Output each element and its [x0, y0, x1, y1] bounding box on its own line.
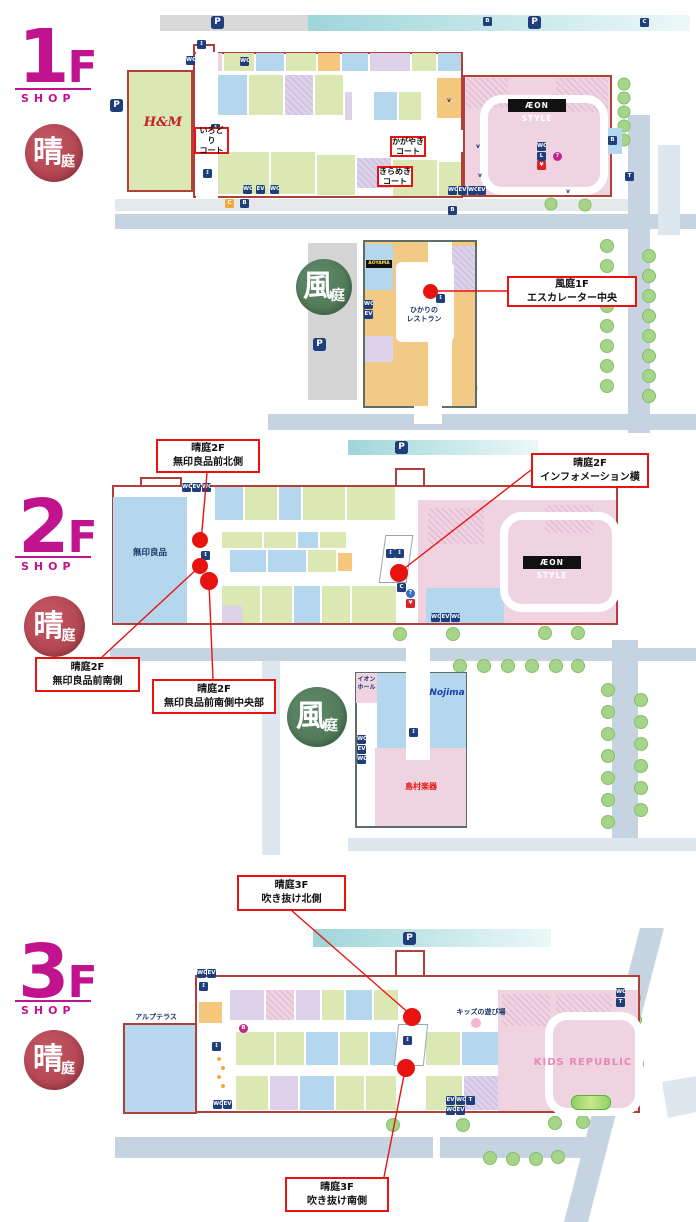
parking-icon: P [403, 932, 416, 945]
shop-cell [451, 246, 475, 290]
footprint-mark [221, 1066, 225, 1070]
callout-2f-muji-north: 晴庭2F 無印良品前北側 [156, 439, 260, 473]
location-pin-information-side [390, 564, 408, 582]
shop-cell [318, 53, 340, 71]
escalator-icon: ↕ [212, 1042, 221, 1051]
toilet-icon: WC [270, 185, 279, 194]
shop-cell [308, 550, 336, 572]
escalator-icon: ↕ [199, 982, 208, 991]
shop-cell [298, 530, 318, 548]
callout-text: 晴庭2F [71, 661, 105, 675]
elevator-icon: EV [192, 483, 201, 492]
shop-cell [215, 487, 243, 520]
phone-icon: T [625, 172, 634, 181]
shop-cell [245, 487, 277, 520]
elevator-icon: EV [256, 185, 265, 194]
parking-icon: P [395, 441, 408, 454]
shop-cell [294, 586, 320, 623]
footprint-mark [221, 1084, 225, 1088]
parking-icon: P [528, 16, 541, 29]
callout-text: 晴庭2F [191, 442, 225, 456]
kaze-niwa-badge-2f: 風庭 [287, 687, 347, 747]
location-pin-atrium-south [397, 1059, 415, 1077]
callout-text: インフォメーション横 [540, 471, 640, 485]
callout-kaze-1f-escalator: 風庭1F エスカレーター中央 [507, 276, 637, 307]
atm-icon: ¥ [537, 161, 546, 170]
shop-cell [322, 990, 344, 1020]
callout-irodori-court: いろどり コート [194, 127, 229, 154]
muji-block [113, 497, 187, 623]
kids-play-area-label: キッズの遊び場 [450, 1008, 512, 1017]
shop-cell [222, 530, 262, 548]
shop-cell [322, 586, 350, 623]
badge-main-char: 晴 [34, 612, 64, 642]
kiosk-icon: C [225, 199, 234, 208]
elevator-icon: EV [477, 186, 486, 195]
skids-garden-logo [571, 1095, 611, 1110]
escalator-icon: ↕ [409, 728, 418, 737]
kids-republic-label: KIDS REPUBLIC [528, 1057, 638, 1070]
toilet-icon: WC [364, 300, 373, 309]
callout-text: 風庭1F [555, 278, 589, 292]
toilet-icon: WC [202, 483, 211, 492]
badge-main-char: 風 [296, 702, 326, 732]
callout-2f-information-side: 晴庭2F インフォメーション横 [531, 453, 649, 488]
corridor [406, 673, 430, 760]
parking-bridge-3f [395, 950, 425, 978]
shop-cell [370, 1032, 396, 1065]
floor1-rule [15, 88, 91, 90]
car-icon: C [640, 18, 649, 27]
callout-text: 晴庭3F [320, 1181, 354, 1195]
badge-sub-char: 庭 [331, 285, 345, 305]
shop-cell [249, 75, 283, 115]
toilet-icon: WC [537, 142, 546, 151]
cart-mark: v [447, 97, 451, 104]
shop-cell [374, 990, 398, 1020]
floor3-rule [15, 1000, 91, 1002]
callout-3f-atrium-south: 晴庭3F 吹き抜け南側 [285, 1177, 389, 1212]
toilet-icon: WC [448, 186, 457, 195]
shop-cell [320, 530, 346, 548]
location-pin-kaze-escalator [423, 284, 438, 299]
footprint-mark [217, 1057, 221, 1061]
nojima-store-label: Nojima [428, 688, 466, 699]
shop-cell [315, 75, 343, 115]
floor3-sublabel: SHOP [21, 1004, 76, 1017]
information-icon: ? [553, 152, 562, 161]
callout-text: 吹き抜け北側 [262, 893, 322, 907]
shop-cell [300, 1076, 334, 1110]
shop-cell [230, 550, 266, 572]
muji-store-label: 無印良品 [124, 548, 176, 559]
badge-sub-char: 庭 [61, 151, 75, 171]
toilet-icon: WC [240, 57, 249, 66]
shop-cell [264, 530, 296, 548]
shimamura-store-label: 島村楽器 [396, 782, 446, 792]
mall-floor-guide: 1F SHOP 晴庭 ÆON STYLE H&M v v v v P B P C [0, 0, 696, 1222]
badge-main-char: 風 [303, 272, 333, 302]
callout-2f-muji-south: 晴庭2F 無印良品前南側 [35, 657, 140, 692]
shop-cell [346, 990, 372, 1020]
escalator-icon: ↕ [436, 294, 445, 303]
toilet-icon: WC [182, 483, 191, 492]
toilet-icon: WC [213, 1100, 222, 1109]
aeon-hall-label: イオン ホール [355, 676, 378, 691]
toilet-icon: WC [468, 186, 477, 195]
shop-cell [262, 586, 292, 623]
kiosk-icon: C [397, 583, 406, 592]
label-line: レストラン [396, 315, 452, 324]
callout-3f-atrium-north: 晴庭3F 吹き抜け北側 [237, 875, 346, 911]
footprint-mark [217, 1075, 221, 1079]
callout-text: いろどり [196, 126, 227, 146]
toilet-icon: WC [357, 735, 366, 744]
location-pin-muji-south-center [200, 572, 218, 590]
shop-cell [268, 550, 306, 572]
aeon-style-label-2f: ÆON STYLE [523, 556, 581, 569]
shop-cell [303, 487, 345, 520]
floor2-sublabel: SHOP [21, 560, 76, 573]
shop-cell [336, 1076, 364, 1110]
callout-text: 吹き抜け南側 [307, 1195, 367, 1209]
shop-cell [340, 1032, 368, 1065]
callout-text: 無印良品前南側 [53, 675, 123, 689]
callout-kirameki-court: きらめき コート [377, 166, 413, 187]
toilet-icon: WC [431, 613, 440, 622]
shop-cell [366, 1076, 396, 1110]
callout-text: 晴庭2F [573, 457, 607, 471]
hikari-restaurant-label: ひかりの レストラン [396, 306, 452, 324]
escalator-icon: ↕ [386, 549, 395, 558]
shop-cell [279, 487, 301, 520]
toilet-icon: WC [197, 969, 206, 978]
shop-cell [317, 155, 355, 195]
callout-text: きらめき [379, 167, 411, 177]
alp-terrace-block [123, 1023, 197, 1114]
parking-icon: P [313, 338, 326, 351]
callout-text: コート [396, 147, 420, 157]
corridor [352, 72, 374, 132]
shop-cell [236, 1076, 268, 1110]
cart-mark: v [478, 172, 482, 179]
hare-niwa-badge-2f: 晴庭 [24, 596, 85, 657]
phone-icon: T [616, 998, 625, 1007]
shop-cell [217, 75, 247, 115]
callout-text: 無印良品前南側中央部 [164, 697, 264, 711]
callout-text: 無印良品前北側 [173, 456, 243, 470]
shop-cell [338, 553, 352, 571]
shop-cell [224, 53, 254, 71]
shop-cell [399, 92, 421, 120]
bus-icon: B [483, 17, 492, 26]
callout-text: かがやき [392, 137, 424, 147]
locker-icon: L [537, 152, 546, 161]
callout-text: コート [200, 146, 224, 156]
corridor [406, 645, 430, 675]
bus-icon: B [240, 199, 249, 208]
elevator-icon: EV [207, 969, 216, 978]
escalator-icon: ↕ [395, 549, 404, 558]
toilet-icon: WC [446, 1106, 455, 1115]
elevator-icon: EV [357, 745, 366, 754]
elevator-icon: EV [446, 1096, 455, 1105]
hare-niwa-badge-1f: 晴庭 [25, 124, 83, 182]
parking-icon: P [211, 16, 224, 29]
callout-text: エスカレーター中央 [527, 292, 617, 306]
information-icon: ? [406, 589, 415, 598]
shop-cell [438, 53, 461, 71]
cart-mark: v [476, 143, 480, 150]
badge-main-char: 晴 [33, 1045, 63, 1075]
label-line: イオン [355, 676, 378, 684]
shop-cell [306, 1032, 338, 1065]
location-pin-atrium-north [403, 1008, 421, 1026]
callout-text: 晴庭3F [275, 879, 309, 893]
baby-room-icon: B [239, 1024, 248, 1033]
bicycle-icon: B [608, 136, 617, 145]
corridor [233, 1065, 398, 1076]
shop-cell [342, 53, 368, 71]
phone-icon: T [466, 1096, 475, 1105]
toilet-icon: WC [186, 56, 195, 65]
kids-play-spot [471, 1018, 481, 1028]
badge-sub-char: 庭 [61, 1058, 75, 1078]
atm-icon: ¥ [406, 599, 415, 608]
badge-sub-char: 庭 [62, 625, 76, 645]
aeon-style-label-1f: ÆON STYLE [508, 99, 566, 112]
corridor [215, 520, 398, 532]
floor1-sublabel: SHOP [21, 92, 76, 105]
entrance-stub-kaze [414, 406, 442, 424]
elevator-icon: EV [456, 1106, 465, 1115]
shop-cell [426, 1032, 460, 1065]
floor2-rule [15, 556, 91, 558]
shop-cell [370, 53, 410, 71]
location-pin-muji-north [192, 532, 208, 548]
shop-cell [222, 606, 242, 623]
callout-text: コート [383, 177, 407, 187]
callout-text: 晴庭2F [197, 683, 231, 697]
hare-niwa-badge-3f: 晴庭 [24, 1030, 84, 1090]
corridor [215, 572, 398, 586]
toilet-icon: WC [357, 755, 366, 764]
floor3-label: 3F [18, 935, 96, 1009]
badge-sub-char: 庭 [324, 715, 338, 735]
callout-2f-muji-south-center: 晴庭2F 無印良品前南側中央部 [152, 679, 276, 714]
shop-cell [462, 1032, 498, 1065]
parking-icon: P [110, 99, 123, 112]
shop-cell [352, 586, 396, 623]
corridor [396, 262, 454, 342]
shop-cell [412, 53, 436, 71]
shop-cell [236, 1032, 274, 1065]
shop-cell [270, 1076, 298, 1110]
alp-terrace-label: アルプテラス [130, 1011, 182, 1023]
shop-cell [365, 336, 393, 362]
shop-cell [256, 53, 284, 71]
shop-cell [266, 990, 294, 1020]
floor1-label: 1F [18, 20, 96, 94]
escalator-icon: ↕ [203, 169, 212, 178]
shop-cell [276, 1032, 304, 1065]
cart-mark: v [566, 188, 570, 195]
badge-main-char: 晴 [33, 138, 63, 168]
elevator-icon: EV [441, 613, 450, 622]
shop-cell [347, 487, 395, 520]
label-line: ひかりの [396, 306, 452, 315]
shop-cell [286, 53, 316, 71]
shop-cell [230, 990, 264, 1020]
toilet-icon: WC [451, 613, 460, 622]
aoyama-store-label: AOYAMA [366, 260, 392, 268]
shop-cell [373, 92, 397, 120]
toilet-icon: WC [616, 988, 625, 997]
hm-store-label: H&M [143, 115, 183, 131]
escalator-icon: ↕ [403, 1036, 412, 1045]
bus-icon: B [448, 206, 457, 215]
kaze-niwa-badge-1f: 風庭 [296, 259, 352, 315]
shop-cell [199, 1002, 222, 1023]
label-line: ホール [355, 684, 378, 692]
shop-cell [285, 75, 313, 115]
elevator-icon: EV [364, 310, 373, 319]
corridor [233, 1020, 398, 1032]
elevator-icon: EV [223, 1100, 232, 1109]
elevator-icon: EV [458, 186, 467, 195]
corridor [217, 130, 463, 152]
shop-cell [428, 508, 484, 544]
shop-cell [296, 990, 320, 1020]
floor2-label: 2F [18, 490, 96, 564]
escalator-icon: ↕ [197, 40, 206, 49]
callout-kagayaki-court: かがやき コート [390, 136, 426, 157]
toilet-icon: WC [456, 1096, 465, 1105]
toilet-icon: WC [243, 185, 252, 194]
